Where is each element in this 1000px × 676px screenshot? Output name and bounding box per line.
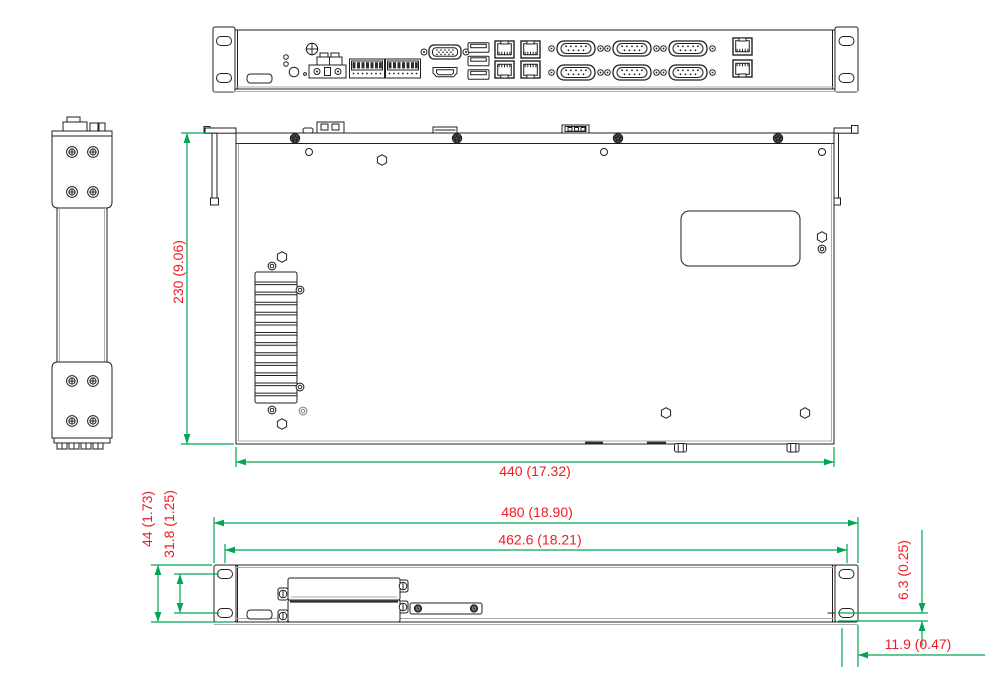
top-view: 230 (9.06) 440 (17.32) [170,122,858,479]
reset-hole [304,73,307,76]
side-bracket-bottom [52,362,112,438]
usb-ports [468,43,489,80]
dim-overall-width-label: 480 (18.90) [501,504,573,520]
grounding-screw [306,43,317,54]
bottom-plate [410,603,482,614]
side-bracket-top [52,136,112,208]
dim-height-label: 44 (1.73) [139,491,155,547]
dim-side-gap-label: 11.9 (0.47) [885,636,952,652]
dim-body-width-label: 440 (17.32) [499,463,571,479]
top-cover [236,133,834,444]
front-panel-view [213,27,858,92]
dim-depth-label: 230 (9.06) [170,240,186,304]
rackmount-dimension-drawing: 230 (9.06) 440 (17.32) [0,0,1000,676]
dim-opening-width-label: 462.6 (18.21) [498,532,581,548]
dim-bottom-gap-label: 6.3 (0.25) [895,540,911,600]
drive-tray-lower [278,600,408,622]
dim-hole-spacing-label: 31.8 (1.25) [161,490,177,558]
label-slot [247,74,272,83]
access-panel [681,211,800,266]
drive-tray-upper [278,578,408,600]
mechanical-drawing-page: 230 (9.06) 440 (17.32) [0,0,1000,676]
terminal-blocks [350,59,421,78]
hdmi-port [433,68,457,77]
cover-screw-small [818,245,826,253]
power-button [289,67,299,77]
bottom-label-slot [247,610,272,619]
